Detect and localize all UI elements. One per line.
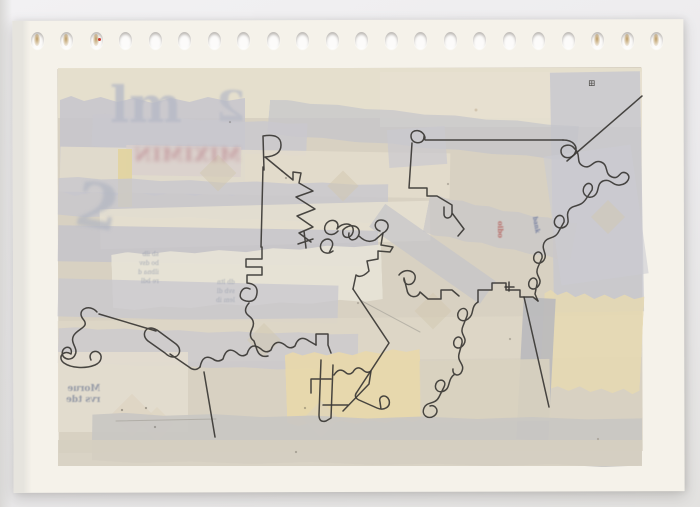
artwork-photo: lm22MIXIMINsb ilb bo dsv ilbna d re bdld… <box>0 0 700 507</box>
hole-stain <box>594 34 600 46</box>
hole-stain <box>624 34 630 46</box>
perforation-hole <box>444 32 457 49</box>
collage-patch <box>58 440 642 466</box>
hole-stain <box>34 34 40 46</box>
perforation-hole <box>355 32 368 49</box>
collage-patch <box>58 278 339 323</box>
perforation-hole <box>621 32 634 49</box>
perforation-hole <box>473 32 486 49</box>
perforation-hole <box>208 32 221 49</box>
perforation-hole <box>31 32 44 49</box>
collage-patch <box>387 126 448 168</box>
perforation-hole <box>267 32 280 49</box>
perforation-hole <box>178 32 191 49</box>
perforation-hole <box>119 32 132 49</box>
perforation-hole <box>562 32 575 49</box>
perforation-hole <box>650 32 663 49</box>
perforation-hole <box>60 32 73 49</box>
hole-stain <box>653 34 659 46</box>
perforation-hole <box>326 32 339 49</box>
perforation-hole <box>90 32 103 49</box>
perforation-hole <box>237 32 250 49</box>
perforation-hole <box>149 32 162 49</box>
perforation-hole <box>532 32 545 49</box>
perforation-hole <box>414 32 427 49</box>
hole-stain <box>63 34 69 46</box>
collage-patch <box>419 359 550 423</box>
perforation-hole <box>503 32 516 49</box>
photo-left-edge-shade <box>0 0 12 507</box>
perforation-hole <box>385 32 398 49</box>
hole-red-mark <box>98 38 101 41</box>
sheet-left-band <box>12 21 31 493</box>
perforation-hole <box>296 32 309 49</box>
perforation-hole <box>591 32 604 49</box>
